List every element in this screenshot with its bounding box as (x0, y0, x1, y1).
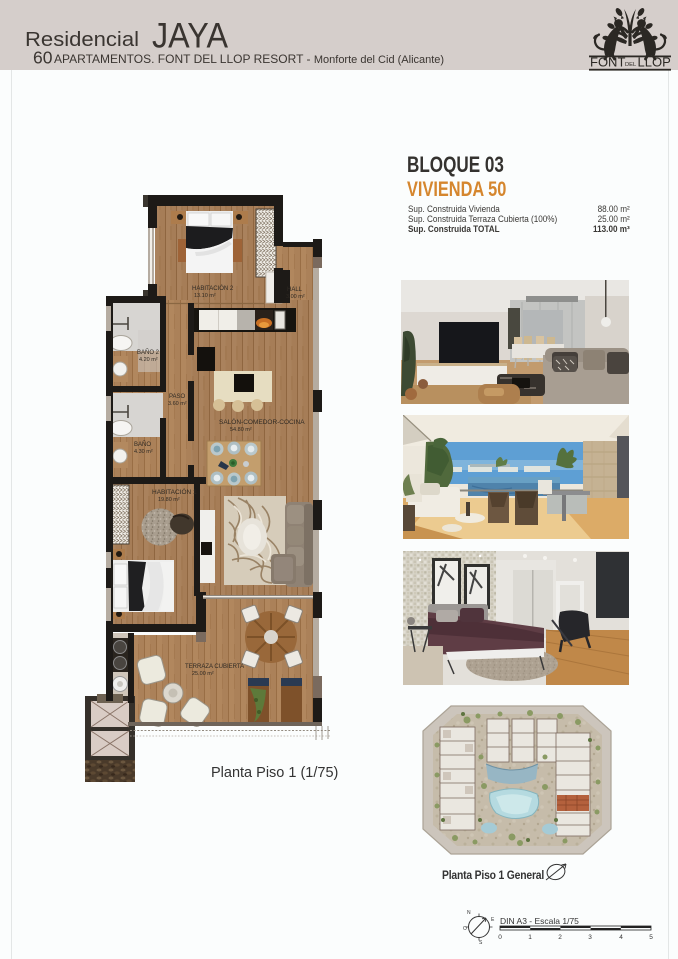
svg-text:BAÑO 2: BAÑO 2 (137, 349, 160, 356)
svg-text:PASO: PASO (169, 394, 186, 400)
svg-text:HALL: HALL (287, 287, 303, 293)
svg-text:BAÑO: BAÑO (134, 441, 151, 448)
svg-text:54.80 m²: 54.80 m² (230, 427, 252, 433)
svg-text:TERRAZA CUBIERTA: TERRAZA CUBIERTA (185, 664, 244, 670)
svg-text:25.00 m²: 25.00 m² (192, 671, 214, 677)
svg-text:13.10 m²: 13.10 m² (194, 293, 216, 299)
svg-text:3.60 m²: 3.60 m² (168, 401, 187, 407)
svg-text:HABITACIÓN 1: HABITACIÓN 1 (152, 487, 197, 496)
svg-text:4.20 m²: 4.20 m² (139, 357, 158, 363)
svg-text:4.30 m²: 4.30 m² (134, 449, 153, 455)
svg-text:HABITACIÓN 2: HABITACIÓN 2 (192, 285, 234, 292)
svg-text:SALÓN-COMEDOR-COCINA: SALÓN-COMEDOR-COCINA (219, 417, 305, 426)
svg-text:3.00 m²: 3.00 m² (286, 294, 305, 300)
svg-text:19.80 m²: 19.80 m² (158, 497, 180, 503)
